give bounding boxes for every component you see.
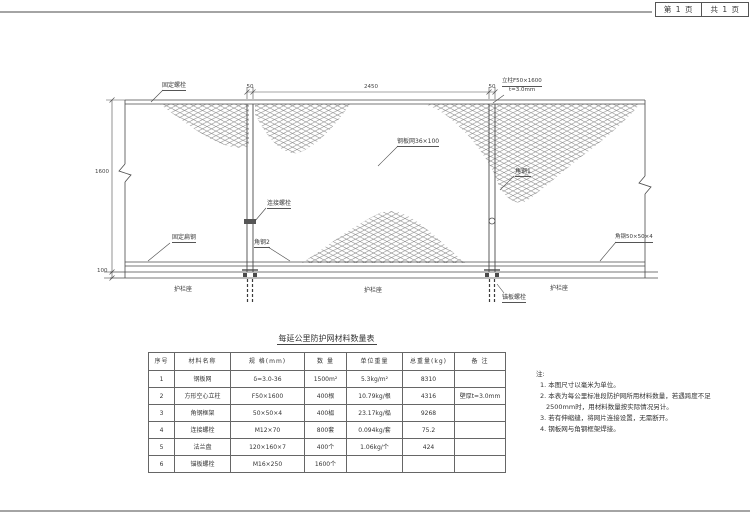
table-cell: 400榀 (305, 405, 347, 422)
table-cell: 壁厚t=3.0mm (455, 388, 506, 405)
table-cell: 4 (149, 422, 175, 439)
table-cell: M16×250 (231, 456, 305, 473)
table-row: 5 法兰盘 120×160×7 400个 1.06kg/个 424 (149, 439, 506, 456)
table-cell: 9268 (403, 405, 455, 422)
label-angle-steel-1: 角钢1 (515, 168, 531, 177)
label-barrier-seat-right: 护栏座 (550, 285, 568, 292)
label-fixing-bolt: 固定螺栓 (162, 82, 186, 91)
col-header: 序号 (149, 353, 175, 371)
table-row: 3 角钢框架 50×50×4 400榀 23.17kg/榀 9268 (149, 405, 506, 422)
table-cell: 400根 (305, 388, 347, 405)
table-cell: 钢板网 (175, 371, 231, 388)
label-angle-steel-2: 角钢2 (254, 239, 270, 248)
table-cell: 1600个 (305, 456, 347, 473)
col-header: 备 注 (455, 353, 506, 371)
note-item: 4. 钢板网与角钢框架焊接。 (536, 424, 732, 435)
dim-post-width-left: 50 (247, 84, 254, 90)
material-quantity-table: 序号 材料名称 规 格(mm) 数 量 单位重量 总重量(kg) 备 注 1 钢… (148, 352, 506, 473)
table-header-row: 序号 材料名称 规 格(mm) 数 量 单位重量 总重量(kg) 备 注 (149, 353, 506, 371)
label-anchor-bolt: 锚板螺栓 (502, 294, 526, 303)
col-header: 规 格(mm) (231, 353, 305, 371)
page-total: 共 1 页 (702, 3, 748, 16)
table-title: 每延公里防护网材料数量表 (148, 333, 505, 344)
table-cell: M12×70 (231, 422, 305, 439)
col-header: 总重量(kg) (403, 353, 455, 371)
drawing-sheet: 第 1 页 共 1 页 2450 50 50 1600 100 固定螺栓 立柱F… (0, 0, 750, 524)
dim-span: 2450 (364, 84, 378, 90)
label-connecting-bolt: 连接螺栓 (267, 200, 291, 209)
table-cell: 5 (149, 439, 175, 456)
table-cell: F50×1600 (231, 388, 305, 405)
table-cell: 120×160×7 (231, 439, 305, 456)
table-cell: δ=3.0-36 (231, 371, 305, 388)
table-cell: 3 (149, 405, 175, 422)
col-header: 材料名称 (175, 353, 231, 371)
col-header: 单位重量 (347, 353, 403, 371)
table-cell: 法兰盘 (175, 439, 231, 456)
table-cell (455, 456, 506, 473)
table-cell: 8310 (403, 371, 455, 388)
table-cell: 50×50×4 (231, 405, 305, 422)
table-cell: 0.094kg/套 (347, 422, 403, 439)
table-cell: 1500m² (305, 371, 347, 388)
table-cell: 方形空心立柱 (175, 388, 231, 405)
note-item: 2. 本表为每公里标准段防护网所用材料数量，若遇跨度不足2500mm时，用材料数… (536, 391, 732, 413)
table-cell (455, 371, 506, 388)
dim-post-width-right: 50 (489, 84, 496, 90)
table-cell (455, 405, 506, 422)
table-cell (455, 422, 506, 439)
page-number: 第 1 页 (656, 3, 703, 16)
table-row: 1 钢板网 δ=3.0-36 1500m² 5.3kg/m² 8310 (149, 371, 506, 388)
table-cell: 锚板螺栓 (175, 456, 231, 473)
table-cell (455, 439, 506, 456)
expanded-metal-mesh (160, 104, 640, 263)
label-barrier-seat-left: 护栏座 (174, 286, 192, 293)
table-cell (347, 456, 403, 473)
note-item: 1. 本图尺寸以毫米为单位。 (536, 380, 732, 391)
label-barrier-seat-mid: 护栏座 (364, 287, 382, 294)
table-cell: 4316 (403, 388, 455, 405)
label-fixing-flat-steel: 固定扁钢 (172, 234, 196, 243)
table-cell: 10.79kg/根 (347, 388, 403, 405)
notes-block: 注: 1. 本图尺寸以毫米为单位。 2. 本表为每公里标准段防护网所用材料数量，… (536, 369, 732, 435)
note-item: 3. 若有伸缩缝，将网片连接设置，无需断开。 (536, 413, 732, 424)
page-number-box: 第 1 页 共 1 页 (655, 2, 749, 17)
table-cell: 连接螺栓 (175, 422, 231, 439)
table-cell: 角钢框架 (175, 405, 231, 422)
table-cell: 1 (149, 371, 175, 388)
table-cell: 400个 (305, 439, 347, 456)
label-angle-spec: 角钢50×50×4 (615, 234, 653, 243)
table-cell: 2 (149, 388, 175, 405)
table-cell: 1.06kg/个 (347, 439, 403, 456)
table-row: 2 方形空心立柱 F50×1600 400根 10.79kg/根 4316 壁厚… (149, 388, 506, 405)
table-cell: 5.3kg/m² (347, 371, 403, 388)
table-row: 4 连接螺栓 M12×70 800套 0.094kg/套 75.2 (149, 422, 506, 439)
table-cell: 6 (149, 456, 175, 473)
label-post-spec: 立柱F50×1600 (502, 78, 542, 87)
label-mesh-spec: 钢板网36×100 (397, 138, 439, 147)
table-cell: 800套 (305, 422, 347, 439)
table-cell: 424 (403, 439, 455, 456)
label-post-thickness: t=3.0mm (509, 87, 535, 94)
dim-base-height: 100 (97, 268, 108, 274)
flange-nuts (243, 273, 499, 277)
notes-title: 注: (536, 369, 732, 380)
table-cell: 23.17kg/榀 (347, 405, 403, 422)
dim-fence-height: 1600 (95, 169, 109, 175)
table-cell (403, 456, 455, 473)
table-cell: 75.2 (403, 422, 455, 439)
table-row: 6 锚板螺栓 M16×250 1600个 (149, 456, 506, 473)
col-header: 数 量 (305, 353, 347, 371)
